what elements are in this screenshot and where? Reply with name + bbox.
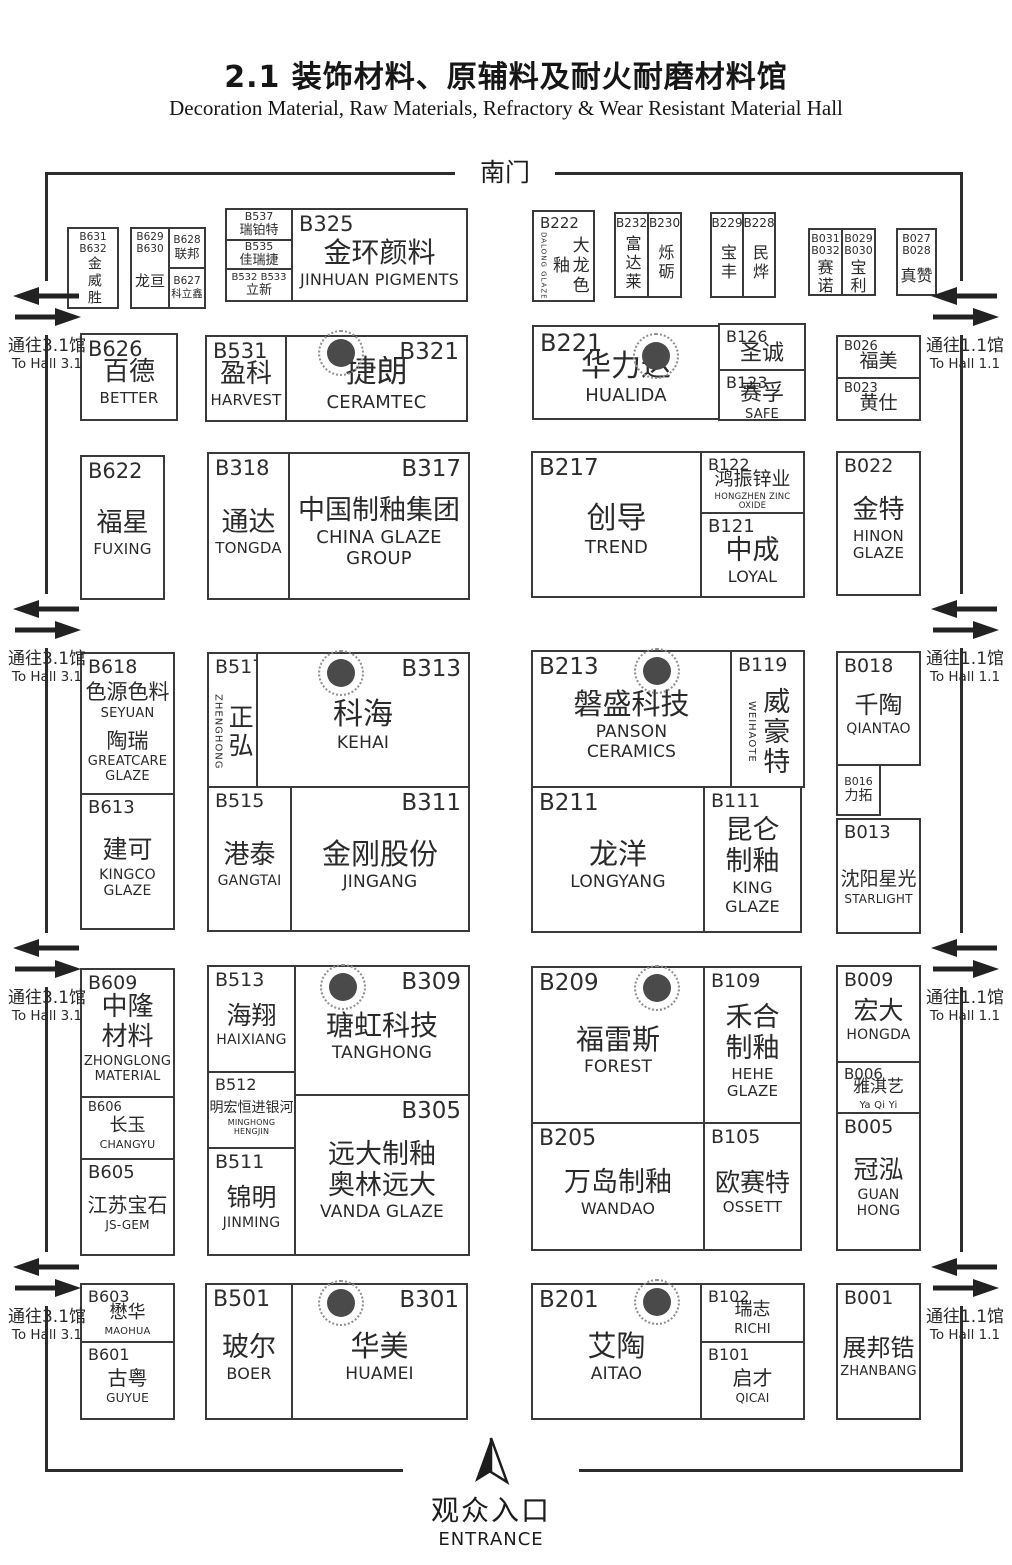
gate-to-hall-3-1: 通往3.1馆To Hall 3.1 [1,284,93,372]
booth-name-cn: 龙洋 [589,838,647,871]
booth-name-en: SEYUAN [101,707,155,722]
booth-name-cn: 宝丰 [718,244,736,282]
booth-name-en: WANDAO [581,1200,655,1218]
booth-name-en: SAFE [745,408,779,423]
pillar-icon [318,1280,364,1326]
booth-b626: B626百德BETTER [80,333,178,421]
booth-code: B016 [844,776,873,788]
booth-name-cn: 大龙色釉 [548,232,587,300]
gate-label-en: To Hall 1.1 [919,669,1011,685]
gate-label-en: To Hall 3.1 [1,1327,93,1343]
booth-b221: B221华力达HUALIDA [532,325,720,420]
booth-name-en: TONGDA [215,540,282,557]
booth-name-cn: 色源色料 [86,680,170,704]
booth-name-en: VANDA GLAZE [320,1203,444,1223]
booth-name-en: HEHE GLAZE [727,1066,778,1101]
booth-name-cn: 佳瑞捷 [239,254,278,269]
booth-name-en: HONGDA [846,1027,910,1043]
booth-b121: B121中成LOYAL [700,512,805,598]
gate-label-en: To Hall 1.1 [919,1327,1011,1343]
booth-b109: B109禾合 制釉HEHE GLAZE [703,966,802,1124]
booth-code: B230 [649,217,680,230]
floor-plan-canvas: 2.1 装饰材料、原辅料及耐火耐磨材料馆 Decoration Material… [0,0,1012,1565]
booth-name-en: HONGZHEN ZINC OXIDE [702,493,803,513]
booth-b026: B026福美 [836,335,921,379]
gate-label-cn: 通往3.1馆 [1,1302,93,1327]
booth-b517: B517ZHENGHONG正弘 [207,652,258,788]
booth-b013: B013沈阳星光STARLIGHT [836,818,921,934]
gate-label-cn: 通往3.1馆 [1,983,93,1008]
booth-b230: B230烁砺 [647,212,682,298]
booth-name-cn: 立新 [246,284,272,299]
booth-b531: B531盈科HARVEST [205,335,287,422]
booth-name-cn: 雅淇艺 [853,1078,904,1098]
booth-name-en: FOREST [584,1058,652,1078]
booth-b119: B119WEIHAOTE威豪特 [730,650,805,788]
booth-name-en: OSSETT [723,1199,783,1216]
booth-name-cn: 科立鑫 [171,289,203,301]
booth-b005: B005冠泓GUAN HONG [836,1112,921,1251]
two-way-arrow-icon [11,284,83,330]
gate-to-hall-3-1: 通往3.1馆To Hall 3.1 [1,1255,93,1343]
booth-name-cn: 宏大 [853,997,903,1026]
two-way-arrow-icon [11,936,83,982]
booth-name-cn: 盈科 [220,360,272,390]
booth-name-en: ZHENGHONG [212,694,224,770]
booth-name-cn: 冠泓 [853,1156,903,1185]
booth-b217: B217创导TREND [531,451,702,598]
gate-label-cn: 通往1.1馆 [919,983,1011,1008]
booth-name-cn: 长玉 [110,1116,146,1137]
booth-b229: B229宝丰 [710,212,744,298]
gate-label-cn: 通往1.1馆 [919,644,1011,669]
booth-name-cn: 龙亘 [135,273,165,290]
booth-b627: B627科立鑫 [168,267,206,309]
booth-name-en: FUXING [93,541,151,558]
booth-name-cn: 联邦 [174,247,199,261]
booth-b532: B532 B533立新 [225,268,293,302]
two-way-arrow-icon [929,936,1001,982]
booth-name-en: DALONG GLAZE [539,232,547,300]
booth-b029: B029B030宝利 [841,228,876,296]
gate-to-hall-1-1: 通往1.1馆To Hall 1.1 [919,284,1011,372]
booth-name-en: RICHI [734,1323,771,1338]
booth-name-cn: 明宏恒进银河 [210,1100,294,1116]
booth-name-cn: 沈阳星光 [840,869,916,891]
gate-label-en: To Hall 1.1 [919,1008,1011,1024]
booth-name-cn: 民烨 [750,244,768,282]
booth-b622: B622福星FUXING [80,455,165,600]
booth-name-cn: 艾陶 [587,1330,645,1363]
booth-name-en: ZHANBANG [840,1365,917,1380]
two-way-arrow-icon [929,1255,1001,1301]
booth-b603: B603懋华MAOHUA [80,1283,175,1343]
booth-b102: B102瑞志RICHI [700,1283,805,1343]
booth-code: B232 [616,217,647,230]
booth-name-cn: 启才 [733,1367,773,1390]
booth-name-cn: 威豪特 [758,687,789,777]
booth-b609: B609中隆 材料ZHONGLONG MATERIAL [80,968,175,1098]
booth-b628: B628联邦 [168,227,206,269]
booth-b515: B515港泰GANGTAI [207,786,292,932]
booth-name-cn: 懋华 [110,1303,146,1324]
booth-name-en: HUAMEI [345,1365,413,1385]
booth-name-cn: 黄仕 [859,393,897,415]
booth-name-cn: 展邦锆 [843,1335,915,1363]
gate-label-en: To Hall 1.1 [919,356,1011,372]
booth-name-cn: 万岛制釉 [564,1167,672,1198]
booth-name-en: MAOHUA [104,1326,150,1338]
booth-b101: B101启才QICAI [700,1341,805,1420]
booth-name-en: MINGHONG HENGJIN [209,1118,294,1136]
booth-name-cn: 百德 [103,358,155,388]
booth-name-en: AITAO [591,1365,642,1385]
booth-b228: B228民烨 [742,212,776,298]
booth-b213: B213磐盛科技PANSON CERAMICS [531,650,732,788]
booth-name-en: JINHUAN PIGMENTS [300,271,459,289]
booth-name-cn: 赛诺 [810,259,841,295]
booth-name-cn: 圣诚 [740,341,784,366]
booth-b317: B317中国制釉集团CHINA GLAZE GROUP [288,452,470,600]
booth-b018: B018千陶QIANTAO [836,651,921,766]
booth-b232: B232富达莱 [614,212,649,298]
booth-name-cn: 福星 [96,509,148,539]
booth-b618: B618色源色料SEYUAN陶瑞GREATCARE GLAZE [80,652,175,795]
booth-name-en: JINMING [223,1215,281,1231]
booth-name-cn: 宝利 [843,259,874,295]
booth-name-cn: 奥林远大 [328,1170,436,1201]
gate-label-en: To Hall 3.1 [1,669,93,685]
booth-code: B228 [743,217,774,230]
booth-name-en: TANGHONG [332,1044,432,1064]
booth-b613: B613建可KINGCO GLAZE [80,793,175,930]
booth-name-cn: 金特 [852,496,904,526]
booth-name-en: WEIHAOTE [746,701,758,763]
booth-code: B629 [136,232,163,244]
booth-b601: B601古粤GUYUE [80,1341,175,1420]
booth-name-cn: 鸿振锌业 [714,469,790,491]
booth-code: B229 [711,217,742,230]
page-title: 2.1 装饰材料、原辅料及耐火耐磨材料馆 [0,52,1012,96]
pillar-icon [634,648,680,694]
page-subtitle: Decoration Material, Raw Materials, Refr… [0,96,1012,121]
booth-b105: B105欧赛特OSSETT [703,1122,802,1251]
booth-b009: B009宏大HONGDA [836,965,921,1063]
booth-name-en: Ya Qi Yi [860,1100,898,1112]
booth-b537: B537瑞铂特 [225,208,293,241]
booth-name-cn: 金刚股份 [322,838,438,871]
booth-code: B537 [245,211,274,223]
gate-label-en: To Hall 3.1 [1,356,93,372]
booth-code: B630 [136,244,163,256]
booth-b211: B211龙洋LONGYANG [531,786,705,933]
booth-name-cn: 中国制釉集团 [298,495,460,526]
booth-b022: B022金特HINON GLAZE [836,451,921,596]
booth-name-cn: 江苏宝石 [88,1194,168,1217]
booth-b318: B318通达TONGDA [207,452,290,600]
booth-b311: B311金刚股份JINGANG [290,786,470,932]
booth-name-cn: 通达 [222,507,276,538]
gate-to-hall-3-1: 通往3.1馆To Hall 3.1 [1,597,93,685]
booth-name-en: HUALIDA [585,386,667,407]
booth-code: B532 B533 [231,272,286,283]
south-gate-label: 南门 [455,157,555,189]
booth-name-cn: 禾合 制釉 [726,1002,780,1064]
pillar-icon [318,330,364,376]
booth-name-cn: 千陶 [855,692,903,720]
booth-code: B632 [79,244,106,256]
booth-name-en: HAIXIANG [216,1032,286,1048]
booth-b222: B222DALONG GLAZE大龙色釉 [532,210,595,302]
booth-name-cn: 磐盛科技 [573,688,689,721]
pillar-icon [633,333,679,379]
booth-name-en: GANGTAI [218,873,282,889]
booth-name-en: CERAMTEC [326,393,426,414]
booth-b305: B305远大制釉奥林远大VANDA GLAZE [294,1094,470,1256]
booth-name-cn: 正弘 [224,704,253,760]
booth-b023: B023黄仕 [836,377,921,421]
booth-name-cn: 瑞志 [735,1300,771,1321]
booth-name-cn: 中成 [726,535,780,566]
booth-name-cn: 港泰 [223,841,275,871]
booth-b629: B629B630龙亘 [130,227,170,309]
booth-name-cn: 瑞铂特 [239,224,278,239]
booth-name-en: HINON GLAZE [853,528,904,563]
booth-name-cn: 建可 [102,836,152,865]
pillar-icon [320,964,366,1010]
booth-name-en: CHANGYU [100,1139,156,1152]
booth-b122: B122鸿振锌业HONGZHEN ZINC OXIDE [700,451,805,514]
booth-name-en: TREND [585,538,648,559]
booth-name-en: LONGYANG [570,873,665,893]
booth-code: B030 [844,245,873,257]
booth-code: B628 [173,235,200,247]
booth-b535: B535佳瑞捷 [225,239,293,270]
booth-name-cn: 玻尔 [222,1332,276,1363]
booth-b001: B001展邦锆ZHANBANG [836,1283,921,1420]
booth-code: B627 [173,276,200,288]
booth-name-en: STARLIGHT [844,893,912,907]
booth-code: B631 [79,232,106,244]
booth-name-cn: 锦明 [226,1184,276,1213]
booth-name-en: QICAI [735,1392,769,1406]
booth-name-en: QIANTAO [846,721,910,737]
booth-name-cn: 古粤 [108,1367,148,1390]
booth-name-en: BOER [226,1365,271,1383]
booth-b016: B016力拓 [836,764,881,816]
booth-name-cn: 昆仑 制釉 [726,815,780,877]
booth-code: B028 [902,245,931,257]
booth-b605: B605江苏宝石JS-GEM [80,1158,175,1256]
booth-name-en: HARVEST [211,392,282,409]
booth-name-en: ZHONGLONG MATERIAL [84,1055,171,1085]
two-way-arrow-icon [11,597,83,643]
booth-b111: B111昆仑 制釉KING GLAZE [703,786,802,933]
booth-name-en: CHINA GLAZE GROUP [316,528,442,569]
gate-to-hall-1-1: 通往1.1馆To Hall 1.1 [919,936,1011,1024]
booth-b513: B513海翔HAIXIANG [207,965,296,1073]
gate-label-cn: 通往1.1馆 [919,1302,1011,1327]
booth-b325: B325金环颜料JINHUAN PIGMENTS [291,208,468,302]
two-way-arrow-icon [929,284,1001,330]
two-way-arrow-icon [929,597,1001,643]
booth-b321: B321捷朗CERAMTEC [285,335,468,422]
booth-name-cn: 力拓 [845,789,873,805]
booth-name-en: BETTER [100,390,159,407]
booth-b501: B501玻尔BOER [205,1283,293,1420]
pillar-icon [318,650,364,696]
pillar-icon [634,965,680,1011]
booth-name-cn: 陶瑞 [107,729,149,753]
booth-name-en: JS-GEM [105,1219,149,1233]
booth-name-cn: 真赞 [900,267,932,285]
booth-name-cn: 富达莱 [623,235,641,292]
booth-name-cn: 欧赛特 [715,1169,790,1198]
entrance-label-cn: 观众入口 [431,1489,551,1529]
visitor-entrance: 观众入口 ENTRANCE [403,1436,579,1554]
booth-name-en: KEHAI [337,734,389,754]
booth-code: B535 [245,241,274,253]
booth-b512: B512明宏恒进银河MINGHONG HENGJIN [207,1071,296,1149]
booth-b123: B123赛孚SAFE [718,369,806,421]
hall-boundary [45,172,963,1472]
booth-name-en: GREATCARE GLAZE [88,755,167,785]
gate-to-hall-3-1: 通往3.1馆To Hall 3.1 [1,936,93,1024]
booth-b511: B511锦明JINMING [207,1147,296,1256]
booth-name-cn: 远大制釉 [328,1139,436,1170]
booth-name-en: JINGANG [343,873,418,893]
entrance-label-en: ENTRANCE [438,1529,543,1550]
booth-name-cn: 福雷斯 [576,1024,660,1056]
booth-name-cn: 金环颜料 [323,237,435,269]
booth-name-en: LOYAL [728,568,777,586]
gate-label-cn: 通往3.1馆 [1,331,93,356]
booth-name-en: KING GLAZE [725,879,780,916]
north-arrow-icon [468,1436,514,1486]
booth-name-cn: 华美 [350,1330,408,1363]
booth-code: B032 [811,245,840,257]
gate-to-hall-1-1: 通往1.1馆To Hall 1.1 [919,1255,1011,1343]
booth-name-cn: 福美 [859,351,897,373]
booth-b031: B031B032赛诺 [808,228,843,296]
booth-name-en: GUAN HONG [857,1187,901,1219]
booth-b205: B205万岛制釉WANDAO [531,1122,705,1251]
pillar-icon [634,1279,680,1325]
booth-name-en: KINGCO GLAZE [99,867,156,899]
booth-name-cn: 赛孚 [740,381,784,406]
booth-name-cn: 中隆 材料 [101,993,153,1053]
gate-to-hall-1-1: 通往1.1馆To Hall 1.1 [919,597,1011,685]
booth-name-en: PANSON CERAMICS [587,723,676,762]
booth-name-cn: 烁砺 [656,244,674,282]
gate-label-en: To Hall 3.1 [1,1008,93,1024]
booth-name-en: GUYUE [106,1392,149,1406]
booth-b606: B606长玉CHANGYU [80,1096,175,1160]
booth-name-cn: 瑭虹科技 [326,1010,438,1042]
booth-name-cn: 科海 [333,698,393,733]
booth-b006: B006雅淇艺Ya Qi Yi [836,1061,921,1114]
two-way-arrow-icon [11,1255,83,1301]
booth-name-cn: 创导 [587,502,647,537]
booth-b126: B126圣诚 [718,323,806,371]
booth-name-cn: 海翔 [226,1002,276,1031]
gate-label-cn: 通往1.1馆 [919,331,1011,356]
gate-label-cn: 通往3.1馆 [1,644,93,669]
